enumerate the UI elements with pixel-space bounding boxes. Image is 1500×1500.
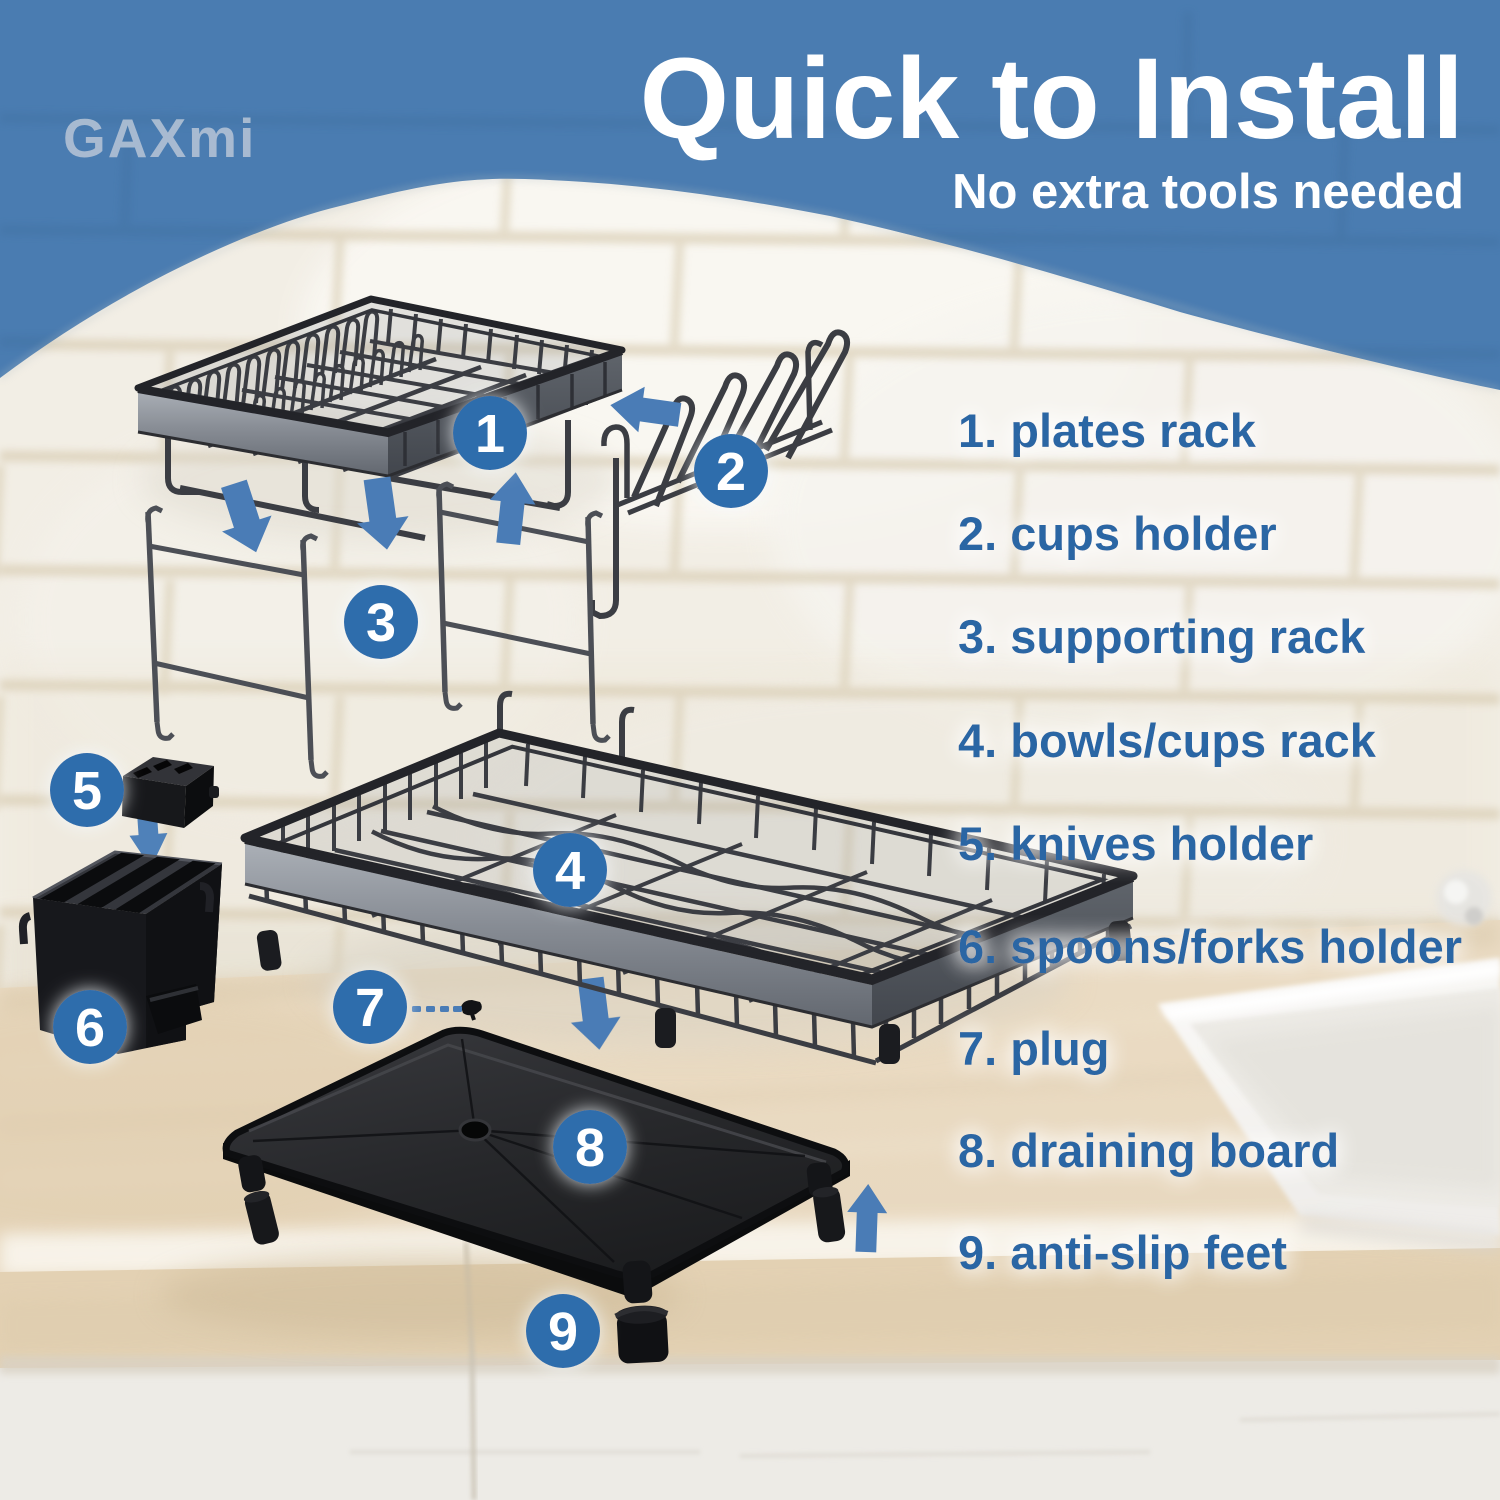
svg-text:4. bowls/cups rack: 4. bowls/cups rack xyxy=(958,714,1377,767)
svg-text:9. anti-slip feet: 9. anti-slip feet xyxy=(958,1226,1287,1279)
svg-text:3. supporting rack: 3. supporting rack xyxy=(958,610,1366,663)
svg-text:8: 8 xyxy=(575,1118,605,1178)
svg-text:3: 3 xyxy=(366,593,396,653)
svg-text:No extra tools needed: No extra tools needed xyxy=(952,165,1464,219)
svg-text:5: 5 xyxy=(72,761,102,821)
svg-text:4: 4 xyxy=(555,841,585,901)
svg-text:6. spoons/forks holder: 6. spoons/forks holder xyxy=(958,920,1462,973)
svg-text:1: 1 xyxy=(475,404,505,464)
svg-text:7. plug: 7. plug xyxy=(958,1022,1109,1075)
svg-text:8. draining board: 8. draining board xyxy=(958,1124,1339,1177)
svg-text:9: 9 xyxy=(548,1302,578,1362)
svg-text:GAXmi: GAXmi xyxy=(63,107,256,169)
svg-text:Quick to Install: Quick to Install xyxy=(640,35,1464,163)
svg-text:2. cups holder: 2. cups holder xyxy=(958,507,1277,560)
svg-text:6: 6 xyxy=(75,998,105,1058)
svg-text:7: 7 xyxy=(355,978,385,1038)
svg-text:5. knives holder: 5. knives holder xyxy=(958,817,1313,870)
svg-text:1. plates rack: 1. plates rack xyxy=(958,404,1257,457)
svg-text:2: 2 xyxy=(716,442,746,502)
